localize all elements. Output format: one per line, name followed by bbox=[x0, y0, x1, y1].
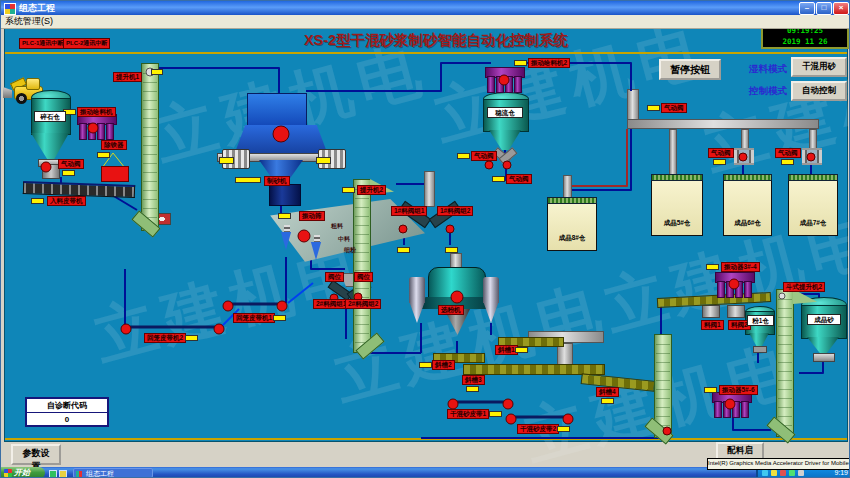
status-indicator bbox=[601, 398, 614, 404]
loader-cab bbox=[26, 78, 40, 90]
equipment-label: 斜槽2 bbox=[432, 360, 455, 370]
powder-separator-drum bbox=[428, 267, 486, 301]
crusher-feedbox bbox=[247, 93, 307, 127]
bin-name-label: 碎石仓 bbox=[34, 111, 66, 122]
parameter-settings-button[interactable]: 参数设置 bbox=[11, 444, 61, 465]
equipment-label: 斜槽4 bbox=[596, 387, 619, 397]
control-mode-label: 控制模式 bbox=[749, 85, 787, 98]
status-indicator bbox=[62, 170, 75, 176]
minimize-button[interactable]: – bbox=[799, 2, 815, 15]
bucket-elevator bbox=[776, 289, 794, 437]
equipment-label: 振动给料机2 bbox=[528, 58, 570, 68]
generated-layer: 立建机电立建机电立建机电立建机电立建机电立建机电立建机电提升机1振动给料机除铁器… bbox=[1, 1, 849, 477]
equipment-label: 气动阀 bbox=[775, 148, 801, 158]
vibrating-feeder-tooth bbox=[505, 76, 513, 93]
status-indicator bbox=[704, 387, 717, 393]
silo-label: 成品6#仓 bbox=[724, 219, 771, 228]
status-indicator bbox=[647, 105, 660, 111]
status-indicator bbox=[31, 198, 44, 204]
pipe bbox=[627, 119, 819, 129]
control-mode-button[interactable]: 自动控制 bbox=[791, 81, 847, 101]
windows-flag-icon bbox=[4, 469, 12, 477]
vibrating-feeder-tooth bbox=[97, 123, 105, 140]
status-indicator bbox=[492, 176, 505, 182]
equipment-label: 气动阀 bbox=[58, 159, 84, 169]
vibrating-feeder-tooth bbox=[106, 123, 114, 140]
plc2-comm-alarm: PLC-2通讯中断 bbox=[63, 38, 110, 49]
product-silo: 成品5#仓 bbox=[651, 178, 703, 236]
vibrating-feeder-tooth bbox=[714, 401, 722, 418]
equipment-label: 入料皮带机 bbox=[47, 196, 86, 206]
butterfly-valve bbox=[727, 305, 745, 318]
iron-remover bbox=[101, 166, 129, 182]
bin-name-label: 稳流仓 bbox=[487, 107, 523, 118]
material-fraction-label: 粗料 bbox=[331, 223, 343, 230]
window-title: 组态工程 bbox=[19, 1, 55, 15]
app-window: 组态工程 – □ × 系统管理(S) PLC-1通讯中断 PLC-2通讯中断 X… bbox=[0, 0, 850, 478]
status-indicator bbox=[278, 213, 291, 219]
start-label: 开始 bbox=[14, 468, 30, 477]
equipment-label: 制砂机 bbox=[264, 176, 290, 186]
driver-tooltip: Intel(R) Graphics Media Accelerator Driv… bbox=[707, 458, 850, 470]
screen-spring bbox=[314, 235, 320, 243]
equipment-label: 2#料阀组1 bbox=[313, 299, 349, 309]
product-silo: 成品8#仓 bbox=[547, 201, 597, 251]
status-indicator bbox=[151, 69, 163, 75]
wet-mode-button[interactable]: 干混用砂 bbox=[791, 57, 847, 77]
product-sand-silo-base bbox=[813, 353, 835, 362]
equipment-label: 振动器5#-6 bbox=[719, 385, 758, 395]
status-indicator bbox=[457, 153, 470, 159]
tray-icon[interactable] bbox=[771, 470, 777, 476]
status-indicator bbox=[316, 157, 331, 164]
self-diagnostic-box: 自诊断代码 0 bbox=[25, 397, 109, 427]
equipment-label: 气动阀 bbox=[708, 148, 734, 158]
tray-icon[interactable] bbox=[762, 470, 768, 476]
diagnostic-label: 自诊断代码 bbox=[27, 399, 107, 413]
equipment-label: 振动给料机 bbox=[77, 107, 116, 117]
screen-spring bbox=[284, 225, 290, 233]
vibrating-feeder-tooth bbox=[744, 281, 752, 298]
task-label: 组态工程 bbox=[86, 470, 114, 477]
material-fraction-label: 中料 bbox=[338, 236, 350, 243]
pneumatic-valve-assembly bbox=[802, 148, 822, 165]
equipment-label: 斗式提升机2 bbox=[783, 282, 825, 292]
vibrating-feeder-tooth bbox=[514, 76, 522, 93]
silo-label: 成品5#仓 bbox=[652, 219, 702, 228]
status-indicator bbox=[342, 187, 355, 193]
bucket-elevator bbox=[141, 63, 159, 231]
equipment-label: 1#料阀组1 bbox=[391, 206, 427, 216]
quicklaunch-icon[interactable] bbox=[59, 470, 67, 478]
product-silo: 成品6#仓 bbox=[723, 178, 772, 236]
equipment-label: 气动阀 bbox=[471, 151, 497, 161]
clock-date: 2019 11 26 bbox=[763, 36, 847, 47]
taskbar-item-project[interactable]: 组态工程 bbox=[73, 468, 153, 478]
equipment-label: 阀位 bbox=[354, 272, 373, 282]
page-title: XS-2型干混砂浆制砂智能自动化控制系统 bbox=[296, 31, 576, 50]
maximize-button[interactable]: □ bbox=[816, 2, 832, 15]
equipment-label: 阀位 bbox=[325, 272, 344, 282]
status-indicator bbox=[515, 347, 528, 353]
equipment-label: 选粉机 bbox=[438, 305, 464, 315]
powder-bin-base bbox=[753, 346, 767, 353]
status-indicator bbox=[419, 362, 432, 368]
vibrating-feeder-tooth bbox=[732, 401, 740, 418]
butterfly-valve bbox=[702, 305, 720, 318]
app-icon bbox=[4, 3, 16, 15]
equipment-label: 除铁器 bbox=[101, 140, 127, 150]
status-indicator bbox=[219, 157, 234, 164]
equipment-label: 振动筛 bbox=[299, 211, 325, 221]
bucket-elevator bbox=[353, 179, 371, 353]
equipment-label: 斜槽3 bbox=[462, 375, 485, 385]
vibrating-feeder-tooth bbox=[79, 123, 87, 140]
status-indicator bbox=[489, 411, 502, 417]
vibrating-feeder-tooth bbox=[723, 401, 731, 418]
status-indicator bbox=[273, 315, 286, 321]
equipment-label: 干混砂皮带2 bbox=[517, 424, 559, 434]
silo-label: 成品7#仓 bbox=[789, 219, 837, 228]
vibrating-feeder-tooth bbox=[741, 401, 749, 418]
product-silo: 成品7#仓 bbox=[788, 178, 838, 236]
bin-name-label: 成品砂 bbox=[807, 314, 841, 325]
vibrating-feeder-tooth bbox=[487, 76, 495, 93]
status-indicator bbox=[445, 247, 458, 253]
separator-line-bottom bbox=[5, 438, 847, 440]
equipment-label: 气动阀 bbox=[506, 174, 532, 184]
silo-label: 成品8#仓 bbox=[548, 234, 596, 243]
material-fraction-label: 细粉 bbox=[344, 247, 356, 254]
start-button[interactable]: 开始 bbox=[1, 467, 45, 478]
equipment-label: 回笼皮带机1 bbox=[233, 313, 275, 323]
status-indicator bbox=[235, 177, 261, 183]
vibrating-feeder-tooth bbox=[726, 281, 734, 298]
equipment-label: 振动器3#-4 bbox=[721, 262, 760, 272]
pneumatic-valve-assembly bbox=[734, 148, 754, 165]
vibrating-feeder-tooth bbox=[735, 281, 743, 298]
status-indicator bbox=[514, 60, 527, 66]
equipment-label: 2#料阀组2 bbox=[345, 299, 381, 309]
equipment-label: 回笼皮带机2 bbox=[144, 333, 186, 343]
equipment-label: 提升机2 bbox=[357, 185, 386, 195]
diagnostic-value: 0 bbox=[27, 413, 107, 427]
close-button[interactable]: × bbox=[833, 2, 849, 15]
wet-mode-label: 湿料模式 bbox=[749, 63, 787, 76]
tray-icon[interactable] bbox=[789, 470, 795, 476]
cyclone-right bbox=[483, 277, 499, 303]
status-indicator bbox=[466, 386, 479, 392]
menu-bar: 系统管理(S) bbox=[1, 15, 850, 29]
menu-system-management[interactable]: 系统管理(S) bbox=[1, 16, 53, 26]
equipment-label: 提升机1 bbox=[113, 72, 142, 82]
status-indicator bbox=[557, 426, 570, 432]
title-bar: 组态工程 – □ × bbox=[1, 1, 850, 15]
equipment-label: 干混砂皮带1 bbox=[447, 409, 489, 419]
status-indicator bbox=[706, 264, 719, 270]
pipe bbox=[669, 129, 677, 179]
equipment-label: 料阀1 bbox=[701, 320, 724, 330]
tray-icon[interactable] bbox=[798, 470, 804, 476]
status-indicator bbox=[97, 152, 110, 158]
vibrating-feeder-tooth bbox=[496, 76, 504, 93]
crusher-outlet bbox=[269, 184, 301, 206]
loader-wheel bbox=[16, 93, 27, 104]
status-indicator bbox=[781, 159, 794, 165]
vibrating-feeder-tooth bbox=[88, 123, 96, 140]
pause-button[interactable]: 暂停按钮 bbox=[659, 59, 721, 80]
status-indicator bbox=[713, 159, 726, 165]
quicklaunch-icon[interactable] bbox=[49, 470, 57, 478]
bin-name-label: 粉1仓 bbox=[747, 315, 774, 326]
status-indicator bbox=[397, 247, 410, 253]
status-indicator bbox=[185, 335, 198, 341]
plc1-comm-alarm: PLC-1通讯中断 bbox=[19, 38, 66, 49]
equipment-label: 气动阀 bbox=[661, 103, 687, 113]
task-icon bbox=[76, 471, 82, 477]
equipment-label: 1#料阀组2 bbox=[437, 206, 473, 216]
cyclone-left bbox=[409, 277, 425, 303]
tray-icon[interactable] bbox=[780, 470, 786, 476]
vibrating-feeder-tooth bbox=[717, 281, 725, 298]
separator-line-top bbox=[5, 52, 847, 54]
diverter-pipe bbox=[424, 171, 435, 207]
